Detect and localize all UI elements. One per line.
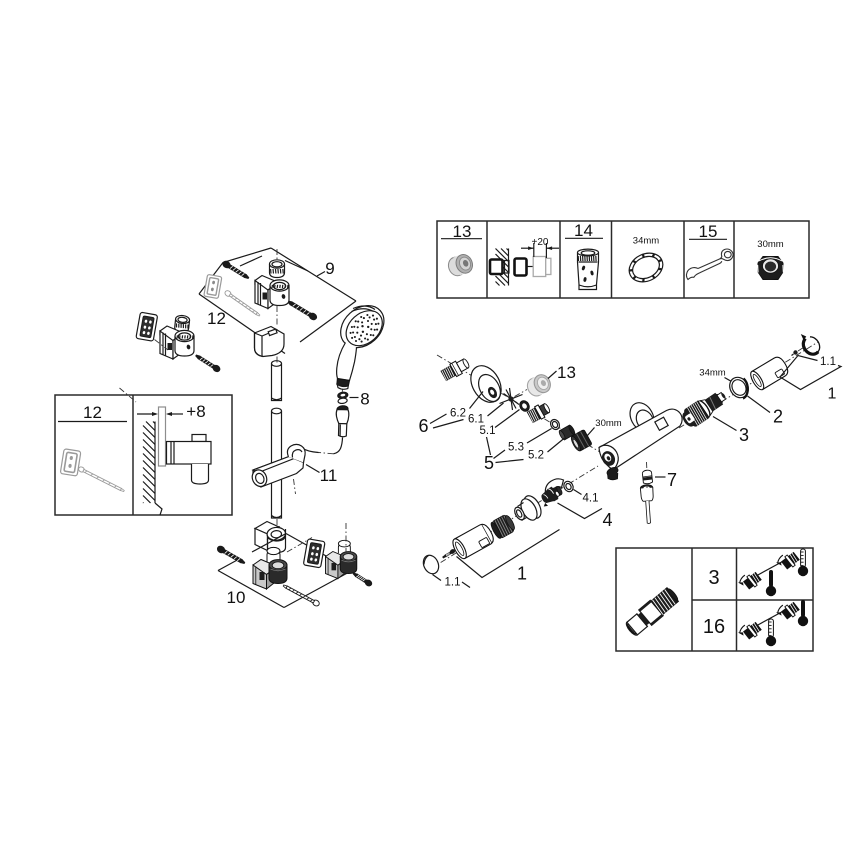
svg-text:1.1: 1.1 bbox=[820, 356, 836, 368]
svg-text:1.1: 1.1 bbox=[445, 577, 461, 589]
svg-text:2: 2 bbox=[773, 407, 783, 427]
svg-text:8: 8 bbox=[360, 390, 369, 409]
svg-text:9: 9 bbox=[325, 259, 334, 278]
svg-text:+8: +8 bbox=[186, 402, 205, 421]
svg-text:6.1: 6.1 bbox=[468, 414, 484, 426]
svg-text:34mm: 34mm bbox=[633, 236, 659, 247]
svg-text:15: 15 bbox=[699, 222, 718, 241]
svg-text:30mm: 30mm bbox=[757, 239, 783, 250]
svg-text:14: 14 bbox=[574, 221, 593, 240]
svg-text:11: 11 bbox=[320, 466, 338, 485]
svg-text:1: 1 bbox=[828, 386, 837, 403]
svg-text:6.2: 6.2 bbox=[450, 408, 466, 420]
svg-text:7: 7 bbox=[667, 470, 677, 490]
svg-text:34mm: 34mm bbox=[699, 368, 725, 379]
svg-text:13: 13 bbox=[557, 363, 576, 382]
svg-text:5.3: 5.3 bbox=[508, 442, 524, 454]
svg-text:12: 12 bbox=[207, 309, 226, 328]
svg-text:4: 4 bbox=[602, 510, 612, 530]
svg-text:5.1: 5.1 bbox=[480, 425, 496, 437]
svg-text:10: 10 bbox=[227, 588, 246, 607]
svg-text:4.1: 4.1 bbox=[583, 493, 599, 505]
svg-text:3: 3 bbox=[708, 567, 719, 589]
svg-text:+20: +20 bbox=[532, 237, 549, 248]
svg-text:3: 3 bbox=[739, 425, 749, 445]
svg-text:6: 6 bbox=[418, 416, 428, 436]
svg-text:12: 12 bbox=[83, 403, 102, 422]
svg-text:5.2: 5.2 bbox=[528, 450, 544, 462]
svg-text:1: 1 bbox=[517, 564, 527, 584]
svg-text:5: 5 bbox=[484, 453, 494, 473]
svg-text:30mm: 30mm bbox=[595, 418, 621, 429]
svg-text:16: 16 bbox=[703, 616, 725, 638]
